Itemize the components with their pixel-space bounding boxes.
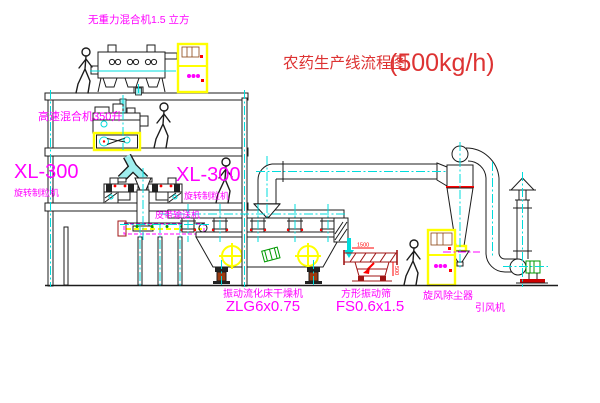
label-cyclone: 旋风除尘器 [423,289,473,302]
dim-sieve-height: 500 [393,266,399,275]
zero-gravity-mixer-drawing [90,45,177,95]
label-granulator-right-model: XL-300 [176,164,241,186]
induced-draft-fan-drawing [510,259,548,283]
label-zero-gravity-mixer: 无重力混合机1.5 立方 [88,13,190,26]
diagram-canvas: 无重力混合机1.5 立方 高速混合机350升 XL-300 旋转制粒机 XL-3… [0,0,600,403]
title-capacity: (500kg/h) [389,49,495,77]
label-granulator-left-name: 旋转制粒机 [14,187,59,198]
control-cabinet-2 [428,230,455,285]
label-fan: 引风机 [475,301,505,314]
label-dryer-model: ZLG6x0.75 [226,298,300,315]
person-top-floor [76,48,92,93]
cad-flow-diagram: 无重力混合机1.5 立方 高速混合机350升 XL-300 旋转制粒机 XL-3… [0,0,600,403]
drawing-title: 农药生产线流程图 (500kg/h) [283,49,495,77]
label-sieve-model: FS0.6x1.5 [336,298,404,315]
control-cabinet-1 [178,44,207,92]
label-granulator-left-model: XL-300 [14,161,79,183]
high-speed-mixer-drawing [93,99,148,150]
person-second-floor [154,103,170,148]
person-ground [404,240,420,285]
dim-sieve-length: 1500 [357,243,369,249]
square-sieve-drawing [344,248,397,281]
label-granulator-right-name: 旋转制粒机 [184,190,229,201]
label-high-speed-mixer: 高速混合机350升 [38,109,122,123]
fluid-bed-dryer-drawing [168,210,354,284]
exhaust-duct [254,161,437,217]
label-belt-conveyor: 皮带输送机 [155,209,200,220]
dryer-feet [213,267,322,284]
